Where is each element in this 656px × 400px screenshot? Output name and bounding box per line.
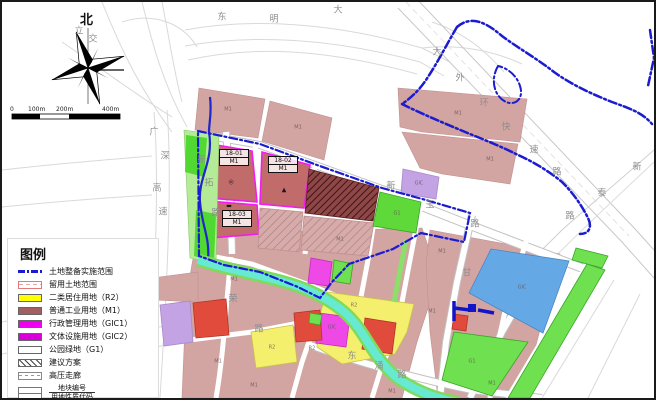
legend-item-hv-corridor: 高压走廊 (18, 371, 152, 380)
legend-item-residential-r2: 二类居住用地（R2） (18, 293, 152, 302)
legend-item-block-code: 地块编号 用地性质代码 (18, 384, 152, 400)
legend-item-park-g1: 公园绿地（G1） (18, 345, 152, 354)
planning-map-canvas[interactable]: 北 0 100m 200m 400m 东明大立交广深高速新拓路大外环快速路新泰路… (0, 0, 656, 400)
legend-item-industrial-m1: 普通工业用地（M1） (18, 306, 152, 315)
legend-item-culture-gic2: 文体设施用地（GIC2） (18, 332, 152, 341)
compass-rose: 北 (40, 13, 136, 116)
proposal-hatch-swatch (18, 359, 42, 367)
legend-item-boundary: 土地整备实施范围 (18, 267, 152, 276)
svg-text:0: 0 (10, 106, 14, 113)
north-label: 北 (80, 13, 93, 28)
hv-corridor-swatch (18, 372, 42, 380)
legend-item-admin-gic1: 行政管理用地（GIC1） (18, 319, 152, 328)
block-code-fraction: 地块编号 用地性质代码 (49, 384, 95, 400)
legend-panel: 图例 土地整备实施范围 留用土地范围 二类居住用地（R2） 普通工业用地（M1）… (7, 238, 159, 398)
boundary-line-swatch (18, 270, 42, 273)
legend-title: 图例 (20, 244, 158, 263)
svg-text:100m: 100m (28, 106, 45, 113)
r2-swatch (18, 294, 42, 302)
svg-text:400m: 400m (102, 106, 119, 113)
legend-item-retained-land: 留用土地范围 (18, 280, 152, 289)
gic2-swatch (18, 333, 42, 341)
retained-land-swatch (18, 281, 42, 289)
m1-swatch (18, 307, 42, 315)
block-code-swatch (18, 387, 42, 399)
legend-item-proposal: 建议方案 (18, 358, 152, 367)
g1-swatch (18, 346, 42, 354)
gic1-swatch (18, 320, 42, 328)
svg-text:200m: 200m (56, 106, 73, 113)
scale-bar: 0 100m 200m 400m (10, 106, 120, 119)
